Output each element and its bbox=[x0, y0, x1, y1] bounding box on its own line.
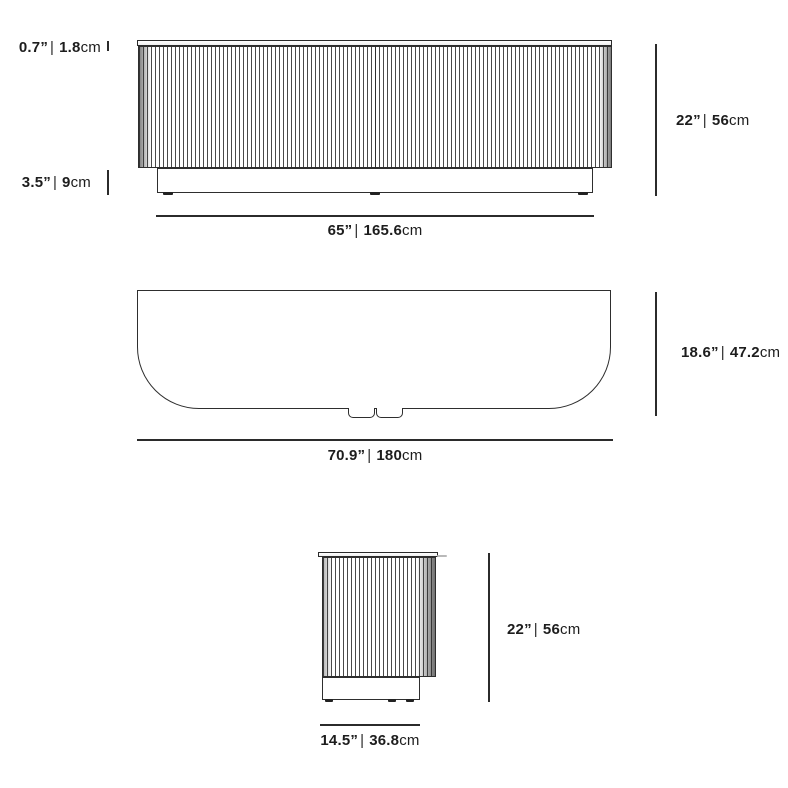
dimension-diagram: 0.7”|1.8cm 3.5”|9cm 22”|56cm 65”|165.6cm… bbox=[0, 0, 788, 788]
dim-metric: 36.8 bbox=[369, 732, 399, 749]
front-fluted-panel bbox=[138, 46, 612, 168]
dim-metric: 56 bbox=[543, 621, 560, 638]
dim-unit: cm bbox=[729, 112, 749, 129]
front-base-height-label: 3.5”|9cm bbox=[15, 174, 91, 191]
front-width-label: 65”|165.6cm bbox=[275, 222, 475, 239]
dim-separator: | bbox=[50, 39, 54, 56]
top-view-outline bbox=[137, 290, 611, 409]
front-height-dim-line bbox=[655, 44, 657, 196]
front-foot-left bbox=[163, 192, 173, 195]
side-width-label: 14.5”|36.8cm bbox=[270, 732, 470, 749]
top-depth-label: 18.6”|47.2cm bbox=[681, 344, 780, 361]
dim-imperial: 3.5” bbox=[22, 174, 51, 191]
dim-separator: | bbox=[53, 174, 57, 191]
side-foot-back bbox=[325, 699, 333, 702]
front-center-seam bbox=[375, 47, 376, 167]
side-foot-front-1 bbox=[388, 699, 396, 702]
dim-imperial: 65” bbox=[328, 222, 353, 239]
dim-imperial: 18.6” bbox=[681, 344, 719, 361]
top-width-dim-line bbox=[137, 439, 613, 441]
dim-separator: | bbox=[721, 344, 725, 361]
top-depth-dim-line bbox=[655, 292, 657, 416]
dim-separator: | bbox=[534, 621, 538, 638]
dim-imperial: 0.7” bbox=[19, 39, 48, 56]
front-top-thickness-label: 0.7”|1.8cm bbox=[15, 39, 101, 56]
side-fluted-panel bbox=[322, 557, 436, 677]
top-view-tab-right bbox=[376, 408, 403, 418]
dim-unit: cm bbox=[402, 447, 422, 464]
front-base bbox=[157, 168, 593, 193]
side-base bbox=[322, 677, 420, 700]
top-width-label: 70.9”|180cm bbox=[275, 447, 475, 464]
dim-imperial: 22” bbox=[507, 621, 532, 638]
front-height-label: 22”|56cm bbox=[676, 112, 749, 129]
dim-separator: | bbox=[360, 732, 364, 749]
front-foot-center bbox=[370, 192, 380, 195]
side-height-dim-line bbox=[488, 553, 490, 702]
dim-metric: 1.8 bbox=[59, 39, 80, 56]
top-view-tab-left bbox=[348, 408, 375, 418]
dim-unit: cm bbox=[71, 174, 91, 191]
dim-unit: cm bbox=[81, 39, 101, 56]
side-height-label: 22”|56cm bbox=[507, 621, 580, 638]
side-edge-shading bbox=[323, 558, 435, 676]
dim-imperial: 14.5” bbox=[320, 732, 358, 749]
dim-unit: cm bbox=[399, 732, 419, 749]
front-foot-right bbox=[578, 192, 588, 195]
dim-unit: cm bbox=[760, 344, 780, 361]
dim-metric: 47.2 bbox=[730, 344, 760, 361]
dim-imperial: 70.9” bbox=[328, 447, 366, 464]
front-width-dim-line bbox=[156, 215, 594, 217]
dim-metric: 180 bbox=[376, 447, 402, 464]
side-top-panel-corner bbox=[437, 555, 447, 557]
front-top-thickness-tick bbox=[107, 41, 109, 51]
dim-metric: 56 bbox=[712, 112, 729, 129]
dim-metric: 165.6 bbox=[363, 222, 402, 239]
dim-imperial: 22” bbox=[676, 112, 701, 129]
dim-separator: | bbox=[367, 447, 371, 464]
dim-separator: | bbox=[354, 222, 358, 239]
side-width-dim-line bbox=[320, 724, 420, 726]
front-base-height-tick bbox=[107, 170, 109, 195]
dim-unit: cm bbox=[560, 621, 580, 638]
dim-metric: 9 bbox=[62, 174, 71, 191]
side-foot-front-2 bbox=[406, 699, 414, 702]
dim-separator: | bbox=[703, 112, 707, 129]
dim-unit: cm bbox=[402, 222, 422, 239]
